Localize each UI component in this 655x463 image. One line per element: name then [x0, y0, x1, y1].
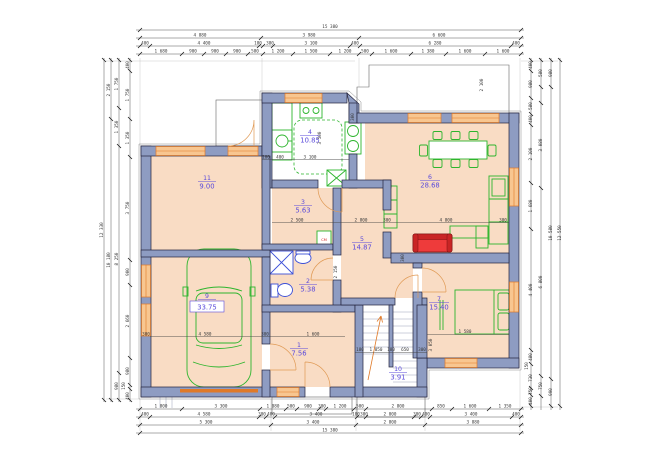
dim-value: 3 400 [307, 420, 320, 426]
dimension-text-top: 15 380 4 880 3 980 6 600 400 4 400 180 3… [141, 24, 520, 55]
dim-value: 1 200 [272, 49, 285, 55]
dim-value: 8 250 [114, 252, 120, 265]
dim-value: 480 [528, 353, 534, 361]
dim-value: 900 [189, 49, 197, 55]
dim-value: 180 [356, 347, 364, 353]
dim-value: 2 800 [392, 404, 405, 410]
dim-value: 900 [233, 49, 241, 55]
room-number: 10 [394, 366, 402, 373]
floor-plan-canvas: СМ [0, 0, 655, 463]
dim-value: 400 [512, 412, 520, 418]
dim-value: 12 550 [557, 225, 563, 241]
dim-value: 180 [254, 41, 262, 47]
dim-value: 400 [422, 412, 430, 418]
room-number: 5 [360, 236, 364, 243]
dim-value: 400 [512, 41, 520, 47]
dim-value: 1 600 [497, 49, 510, 55]
dim-value: 1 680 [155, 49, 168, 55]
dim-value: 10 580 [548, 225, 554, 241]
dim-value: 1 750 [125, 88, 131, 101]
dim-value: 100 [352, 412, 360, 418]
dim-value: 500 [361, 49, 369, 55]
dim-value: 1 800 [155, 404, 168, 410]
kitchen-units [272, 103, 361, 186]
dim-value: 650 [401, 347, 409, 353]
dim-value: 10 180 [106, 252, 112, 268]
dim-value: 750 [528, 387, 534, 395]
room-area: 9.00 [199, 183, 214, 191]
room-number: 9 [205, 293, 209, 300]
dim-value: 1 680 [528, 199, 534, 212]
dim-value: 500 [287, 404, 295, 410]
dim-value: 400 [141, 412, 149, 418]
dim-value: 3 880 [467, 420, 480, 426]
dim-value: 580 [528, 102, 534, 110]
dim-value: 3 100 [305, 41, 318, 47]
dim-value: 5 300 [200, 420, 213, 426]
room-area: 28.68 [420, 182, 439, 190]
dim-value: 580 [251, 49, 259, 55]
red-sofa-symbol [413, 234, 452, 252]
dim-value: 3 400 [310, 412, 323, 418]
room-number: 2 [306, 278, 310, 285]
dim-value: 980 [114, 382, 120, 390]
dim-value: 900 [125, 268, 131, 276]
dim-value: 400 [125, 61, 131, 69]
dim-value: 750 [538, 382, 544, 390]
dim-value: 2 800 [355, 218, 368, 224]
boiler-label: СМ [321, 238, 327, 242]
dim-value: 4 880 [194, 33, 207, 39]
dim-value: 2 150 [106, 83, 112, 96]
dim-value: 1 350 [114, 120, 120, 133]
dim-value: 4 400 [198, 41, 211, 47]
dim-value: 1 350 [499, 404, 512, 410]
room-area: 15.40 [429, 304, 448, 312]
dim-value: 1 600 [307, 332, 320, 338]
dim-value: 1 580 [459, 329, 472, 335]
dim-value: 2 500 [291, 218, 304, 224]
dim-value: 1 600 [459, 49, 472, 55]
dim-value: 1 750 [114, 77, 120, 90]
dim-value: 300 [383, 218, 391, 224]
dim-value: 400 [528, 397, 534, 405]
dim-value: 3 050 [428, 338, 434, 351]
dim-value: 300 [400, 254, 406, 262]
dim-value: 4 400 [528, 283, 534, 296]
floor-plan-drawing: СМ [0, 0, 655, 463]
dim-value: 150 [121, 382, 127, 390]
dim-value: 4 800 [440, 218, 453, 224]
room-area: 5.38 [300, 286, 315, 294]
room-number: 1 [297, 342, 301, 349]
room-number: 6 [428, 174, 432, 181]
dim-value: 1 200 [334, 404, 347, 410]
dim-value: 400 [351, 41, 359, 47]
garage-door [180, 389, 258, 393]
terrace-top-right [357, 65, 509, 113]
dim-value: 1 050 [370, 347, 383, 353]
dim-value: 300 [261, 332, 269, 338]
dim-value: 180 [387, 347, 395, 353]
dim-value: 15 380 [322, 24, 338, 30]
room-number: 11 [203, 175, 211, 182]
room-area: 3.91 [390, 374, 405, 382]
dim-value: 400 [267, 412, 275, 418]
dim-value: 900 [211, 49, 219, 55]
dim-value: 300 [142, 332, 150, 338]
dim-value: 990 [548, 388, 554, 396]
dim-value: 3 980 [303, 33, 316, 39]
dim-value: 150 [524, 362, 530, 370]
dim-value: 2 000 [384, 412, 397, 418]
dim-value: 300 [258, 412, 266, 418]
dim-value: 850 [437, 404, 445, 410]
dim-value: 400 [528, 61, 534, 69]
room-area: 14.87 [352, 244, 371, 252]
dim-value: 980 [548, 69, 554, 77]
dim-value: 580 [538, 69, 544, 77]
room-area: 7.56 [291, 350, 306, 358]
dim-value: 6 280 [429, 41, 442, 47]
dim-value: 100 [262, 155, 270, 161]
dim-value: 1 380 [422, 49, 435, 55]
dim-value: 3 750 [125, 201, 131, 214]
dim-value: 300 [360, 412, 368, 418]
dim-value: 300 [499, 218, 507, 224]
dim-value: 4 580 [199, 332, 212, 338]
dim-value: 2 100 [528, 147, 534, 160]
dim-value: 3 100 [304, 155, 317, 161]
dim-value: 1 200 [339, 49, 352, 55]
dim-value: 1 500 [305, 49, 318, 55]
dim-value: 300 [350, 113, 356, 121]
dim-value: 3 400 [465, 412, 478, 418]
dim-value: 6 600 [433, 33, 446, 39]
dim-value: 300 [418, 347, 426, 353]
dim-value: 6 800 [538, 275, 544, 288]
dim-value: 300 [413, 412, 421, 418]
room-area: 5.63 [295, 207, 310, 215]
dim-value: 15 380 [322, 428, 338, 434]
room-number: 4 [308, 129, 312, 136]
dim-value: 980 [528, 80, 534, 88]
room-area: 33.75 [197, 304, 216, 312]
dim-value: 400 [141, 41, 149, 47]
floor-room-1 [270, 312, 355, 387]
dim-value: 380 [266, 41, 274, 47]
floor-room-11 [151, 156, 262, 250]
dim-value: 730 [528, 374, 534, 382]
dim-value: 980 [125, 367, 131, 375]
island-sink [345, 122, 361, 154]
dim-value: 1 600 [464, 404, 477, 410]
dim-value: 1 350 [125, 131, 131, 144]
dim-value: 3 300 [215, 404, 228, 410]
dim-value: 400 [528, 115, 534, 123]
room-area: 10.85 [300, 137, 319, 145]
dim-value: 900 [304, 404, 312, 410]
dim-value: 2 150 [333, 265, 339, 278]
dim-value: 3 080 [538, 138, 544, 151]
dim-value: 12 330 [99, 222, 105, 238]
dim-value: 1 080 [267, 404, 280, 410]
dim-value: 300 [318, 404, 326, 410]
room-label-4: 4 10.85 [300, 129, 320, 145]
room-number: 7 [437, 296, 441, 303]
porch-top-left [216, 100, 262, 146]
dim-value: 2 660 [125, 314, 131, 327]
dim-value: 2 100 [479, 78, 485, 91]
floor-garage [151, 257, 262, 387]
dim-value: 400 [125, 392, 131, 400]
toilet-symbol [271, 284, 278, 297]
dim-value: 2 800 [384, 420, 397, 426]
room-number: 3 [301, 199, 305, 206]
dim-value: 4 580 [198, 412, 211, 418]
dim-value: 400 [276, 155, 284, 161]
dim-value: 1 600 [385, 49, 398, 55]
dim-value: 500 [356, 404, 364, 410]
